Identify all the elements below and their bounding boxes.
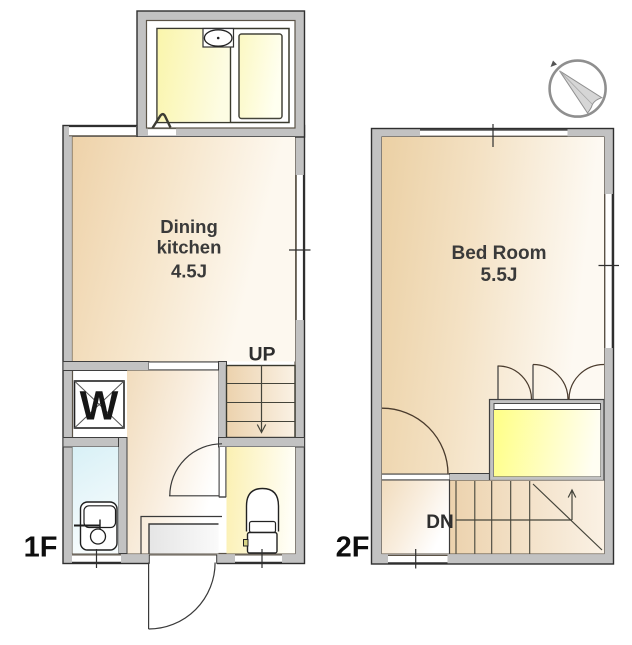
- svg-text:2F: 2F: [336, 532, 370, 564]
- svg-text:DN: DN: [426, 512, 453, 533]
- svg-text:5.5J: 5.5J: [481, 265, 518, 286]
- svg-text:kitchen: kitchen: [157, 237, 222, 258]
- svg-text:W: W: [80, 383, 119, 429]
- svg-text:UP: UP: [248, 344, 275, 366]
- svg-text:Bed Room: Bed Room: [452, 243, 547, 264]
- svg-text:4.5J: 4.5J: [171, 261, 207, 282]
- svg-text:1F: 1F: [24, 532, 58, 564]
- svg-text:Dining: Dining: [160, 216, 218, 237]
